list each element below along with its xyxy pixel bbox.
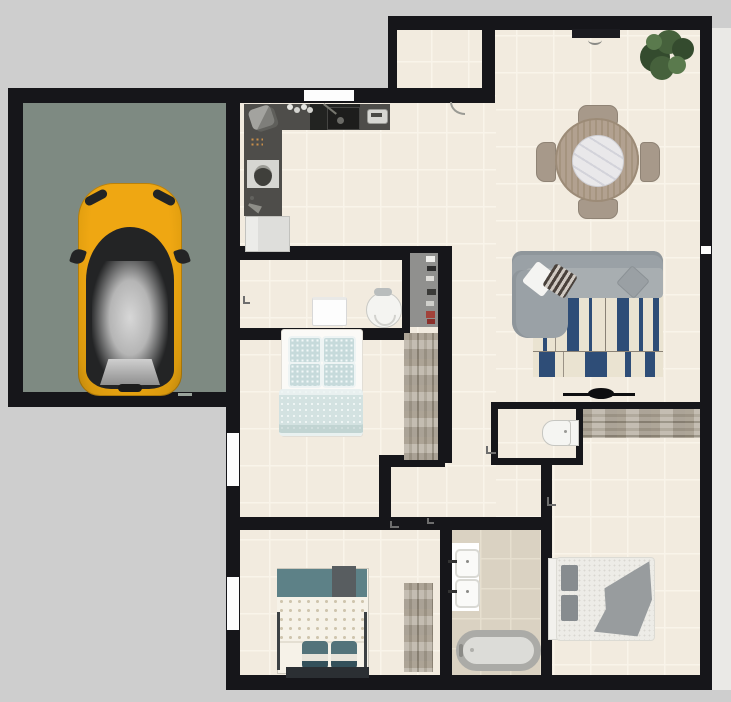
dresser-bl[interactable] [404, 583, 433, 672]
sink-faucet [448, 560, 457, 563]
wall-hall-vertical [438, 246, 452, 463]
bed-footboard [286, 667, 369, 678]
tub-drain [470, 648, 474, 652]
car-front-windshield [100, 359, 160, 385]
rug-lower [533, 351, 663, 377]
bed-middle[interactable] [280, 329, 362, 436]
toilet-button [564, 430, 567, 433]
sofa[interactable] [512, 251, 663, 338]
wall-niche-south [388, 88, 495, 103]
toilet[interactable] [542, 419, 578, 445]
exterior-strip [712, 28, 731, 690]
car[interactable] [78, 183, 182, 396]
car-grille [118, 384, 142, 392]
bed-bottom-left[interactable] [274, 565, 369, 678]
tv-center [588, 388, 614, 399]
door-mark-bedroom-bl2 [427, 518, 434, 524]
tub-faucet [459, 644, 463, 657]
burner-knob [287, 104, 293, 110]
garage-wall-top [8, 88, 240, 103]
bed-duvet-dotted [277, 597, 367, 643]
console[interactable] [583, 409, 700, 438]
wall-bath-west [440, 517, 452, 675]
toilet-bowl [542, 420, 571, 446]
kitchen-window[interactable] [304, 90, 354, 101]
shelf-item [427, 289, 436, 295]
dining-table-marble [572, 135, 624, 187]
garage-wall-left [8, 88, 23, 407]
bed-pillow [322, 336, 356, 364]
bed-bottom-right[interactable] [548, 556, 656, 640]
door-mark-bedroom-bl [390, 521, 399, 528]
floor-plan-canvas [0, 0, 731, 702]
bedroom-middle-window[interactable] [227, 433, 239, 486]
entry-door-handle [588, 35, 602, 45]
bed-pillow [322, 362, 356, 388]
sink-faucet [448, 590, 457, 593]
dining-chair-left[interactable] [536, 142, 556, 182]
shelf-item [427, 266, 436, 271]
counter-dot [250, 196, 254, 200]
bed-pillow-gray [561, 595, 578, 621]
shelf-item [426, 311, 435, 318]
door-mark-nook [243, 296, 250, 304]
wall-wc-bottom [491, 458, 583, 465]
burner-knob [307, 107, 313, 113]
microwave-slot [371, 113, 382, 117]
door-mark-wc [486, 446, 496, 454]
bed-duvet [279, 389, 363, 436]
chair-cushion [374, 288, 392, 296]
plant-leaf [646, 34, 662, 50]
wall-east [700, 16, 712, 690]
wall-wc-top [491, 402, 583, 409]
faucet-head [337, 117, 344, 124]
plant[interactable] [638, 28, 696, 84]
nook-dresser[interactable] [312, 297, 347, 326]
shelf-item [426, 301, 434, 306]
floor-entry-niche [394, 24, 486, 94]
vanity-chair[interactable] [366, 290, 400, 327]
sink [455, 579, 480, 608]
wardrobe[interactable] [404, 333, 438, 460]
bed-pillow-teal [331, 641, 357, 669]
wall-nook-divider [402, 253, 410, 340]
shelf-item [427, 319, 435, 324]
spice-dots [250, 137, 263, 148]
wall-bedroom3-north [583, 402, 712, 409]
bed-throw-gray [332, 566, 356, 597]
bed-pillow-teal [302, 641, 328, 669]
bedroom-bl-window[interactable] [227, 577, 239, 630]
sink-drain [466, 560, 469, 563]
shelf-item [426, 276, 434, 281]
burner-knob [294, 107, 300, 113]
bed-rail [277, 612, 280, 670]
door-mark-bedroom-br [547, 497, 556, 506]
bed-pillow [288, 336, 322, 364]
sink [455, 549, 480, 578]
fridge[interactable] [245, 216, 290, 252]
shelf-item [426, 256, 435, 262]
bed-rail [364, 612, 367, 670]
shelf[interactable] [410, 253, 438, 327]
sink-drain [466, 590, 469, 593]
plant-leaf [668, 56, 686, 74]
wall-wc-left [491, 402, 498, 465]
pot [254, 165, 272, 186]
bed-pillow [288, 362, 322, 388]
dining-chair-right[interactable] [640, 142, 660, 182]
east-window[interactable] [701, 246, 711, 254]
bed-pillow-gray [561, 565, 578, 591]
dining-chair-bottom[interactable] [578, 199, 618, 219]
bathtub[interactable] [456, 630, 541, 671]
